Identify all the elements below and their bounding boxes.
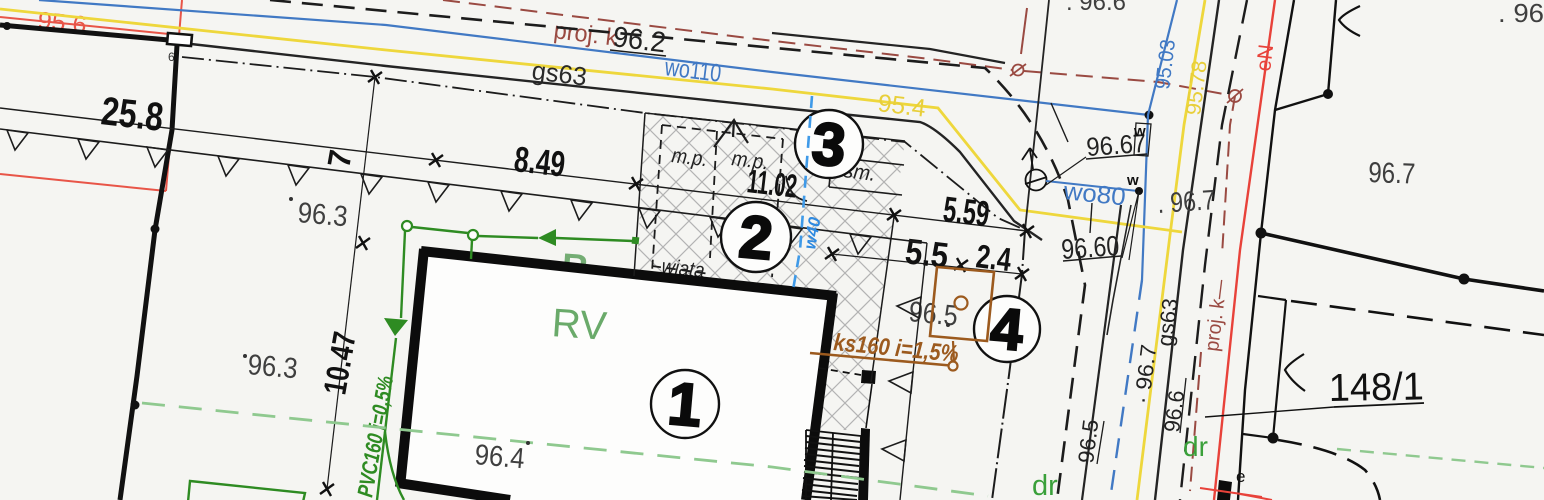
svg-text:dr: dr	[1032, 470, 1058, 500]
svg-text:. 96: . 96	[1498, 0, 1544, 28]
svg-text:2: 2	[736, 203, 775, 273]
svg-text:eN: eN	[1252, 43, 1278, 72]
svg-text:1: 1	[665, 370, 704, 440]
svg-text:96.3: 96.3	[296, 196, 349, 233]
svg-text:m.p.: m.p.	[670, 144, 709, 172]
svg-text:RV: RV	[550, 301, 608, 349]
svg-text:e: e	[1236, 467, 1245, 486]
svg-text:. 96.6: . 96.6	[1066, 0, 1126, 16]
svg-text:5.5: 5.5	[903, 232, 950, 277]
svg-text:w: w	[1126, 172, 1139, 189]
svg-text:8.49: 8.49	[512, 139, 567, 185]
svg-text:m.p.: m.p.	[730, 147, 770, 174]
svg-text:25.8: 25.8	[99, 88, 166, 140]
svg-text:5.59: 5.59	[941, 189, 992, 234]
svg-text:4: 4	[988, 296, 1026, 364]
svg-text:dr: dr	[1183, 431, 1208, 462]
svg-text:96.4: 96.4	[473, 438, 526, 475]
svg-text:. 96.7: . 96.7	[1156, 185, 1216, 219]
svg-text:3: 3	[809, 110, 848, 180]
svg-text:w: w	[1133, 123, 1146, 140]
svg-text:96.7: 96.7	[1368, 156, 1416, 190]
svg-text:96.3: 96.3	[246, 348, 299, 385]
